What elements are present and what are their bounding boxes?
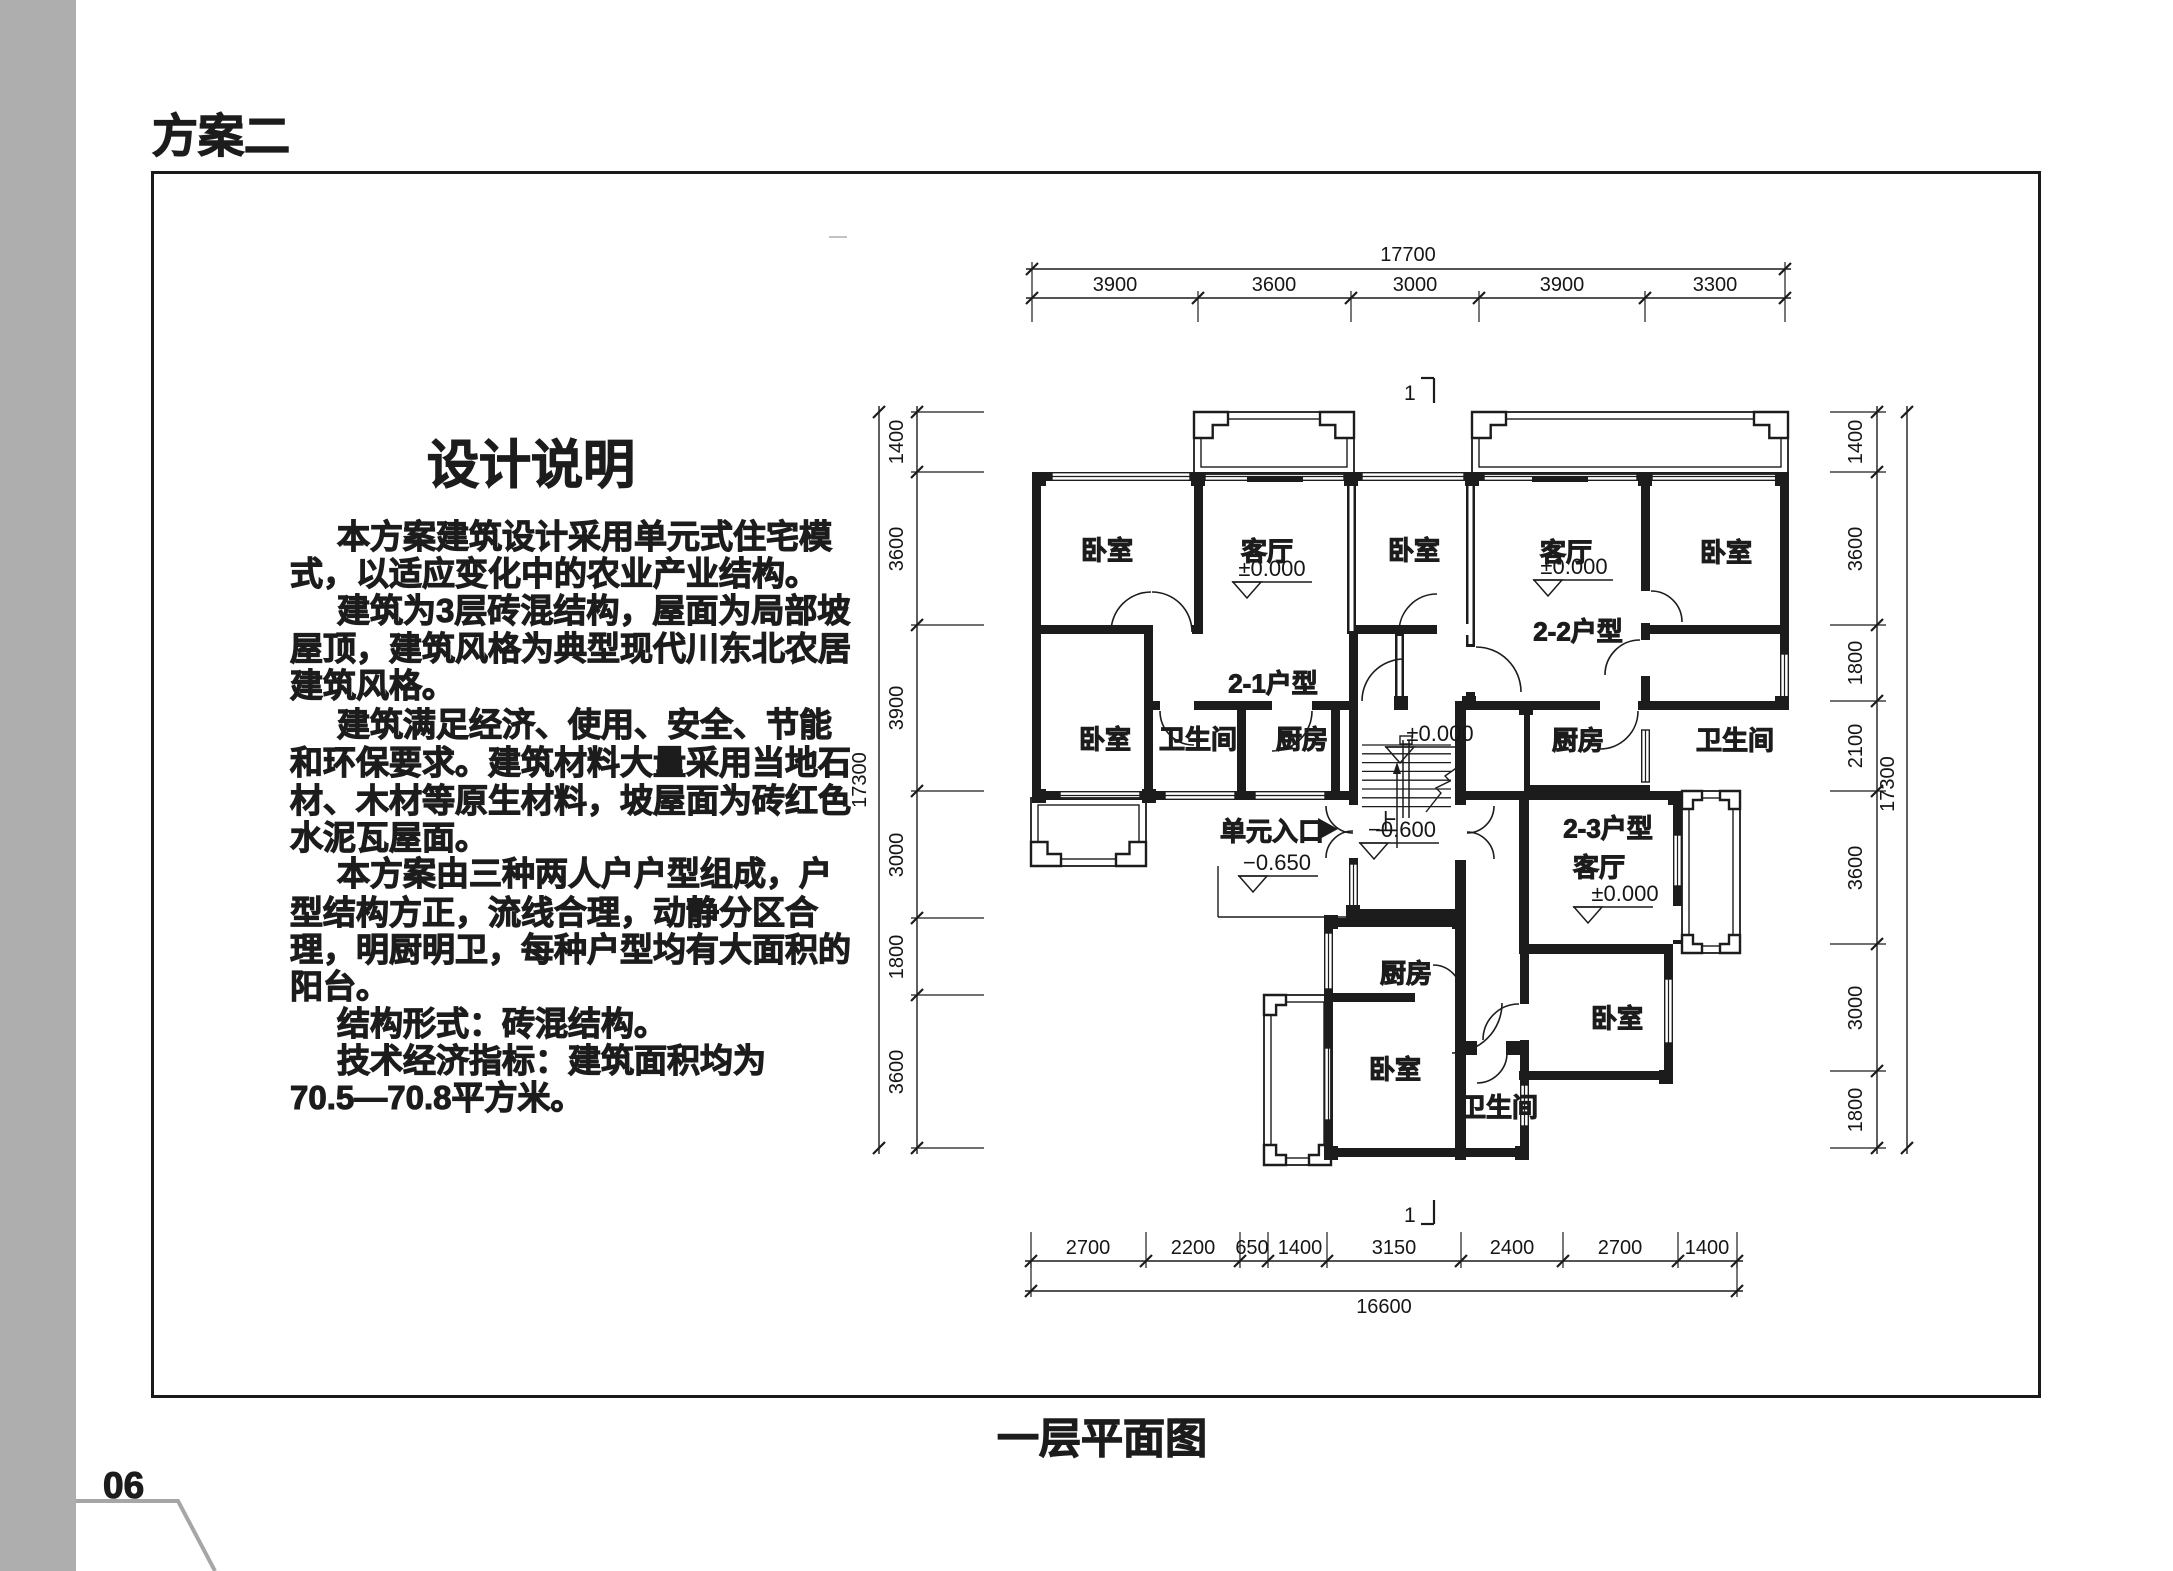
svg-text:1400: 1400 — [886, 420, 908, 465]
svg-text:3600: 3600 — [886, 527, 908, 572]
svg-text:3000: 3000 — [1393, 274, 1438, 296]
svg-text:1800: 1800 — [886, 935, 908, 980]
svg-text:1800: 1800 — [1845, 641, 1867, 686]
svg-text:16600: 16600 — [1356, 1296, 1412, 1318]
svg-text:±0.000: ±0.000 — [1406, 721, 1473, 746]
svg-text:2100: 2100 — [1845, 724, 1867, 769]
svg-text:3150: 3150 — [1372, 1237, 1417, 1259]
svg-text:2700: 2700 — [1598, 1237, 1643, 1259]
svg-text:1400: 1400 — [1845, 420, 1867, 465]
svg-text:−0.650: −0.650 — [1243, 850, 1311, 875]
svg-text:1: 1 — [1404, 1204, 1416, 1227]
svg-text:3600: 3600 — [1845, 846, 1867, 891]
svg-text:2400: 2400 — [1490, 1237, 1535, 1259]
svg-text:1400: 1400 — [1278, 1237, 1323, 1259]
svg-text:3600: 3600 — [1252, 274, 1297, 296]
svg-text:3900: 3900 — [886, 686, 908, 731]
svg-text:3600: 3600 — [886, 1050, 908, 1095]
svg-text:2700: 2700 — [1066, 1237, 1111, 1259]
svg-text:17300: 17300 — [1877, 756, 1899, 812]
svg-text:3000: 3000 — [1845, 986, 1867, 1031]
svg-text:1400: 1400 — [1685, 1237, 1730, 1259]
svg-text:3000: 3000 — [886, 833, 908, 878]
svg-text:3900: 3900 — [1540, 274, 1585, 296]
svg-text:3600: 3600 — [1845, 527, 1867, 572]
svg-text:1: 1 — [1404, 382, 1416, 405]
svg-text:17300: 17300 — [849, 752, 871, 808]
svg-text:上: 上 — [1375, 809, 1398, 835]
svg-text:±0.000: ±0.000 — [1591, 881, 1658, 906]
svg-text:2200: 2200 — [1171, 1237, 1216, 1259]
svg-text:650: 650 — [1235, 1237, 1268, 1259]
svg-text:1800: 1800 — [1845, 1088, 1867, 1133]
svg-text:17700: 17700 — [1380, 244, 1436, 266]
svg-text:3900: 3900 — [1093, 274, 1138, 296]
svg-text:3300: 3300 — [1693, 274, 1738, 296]
